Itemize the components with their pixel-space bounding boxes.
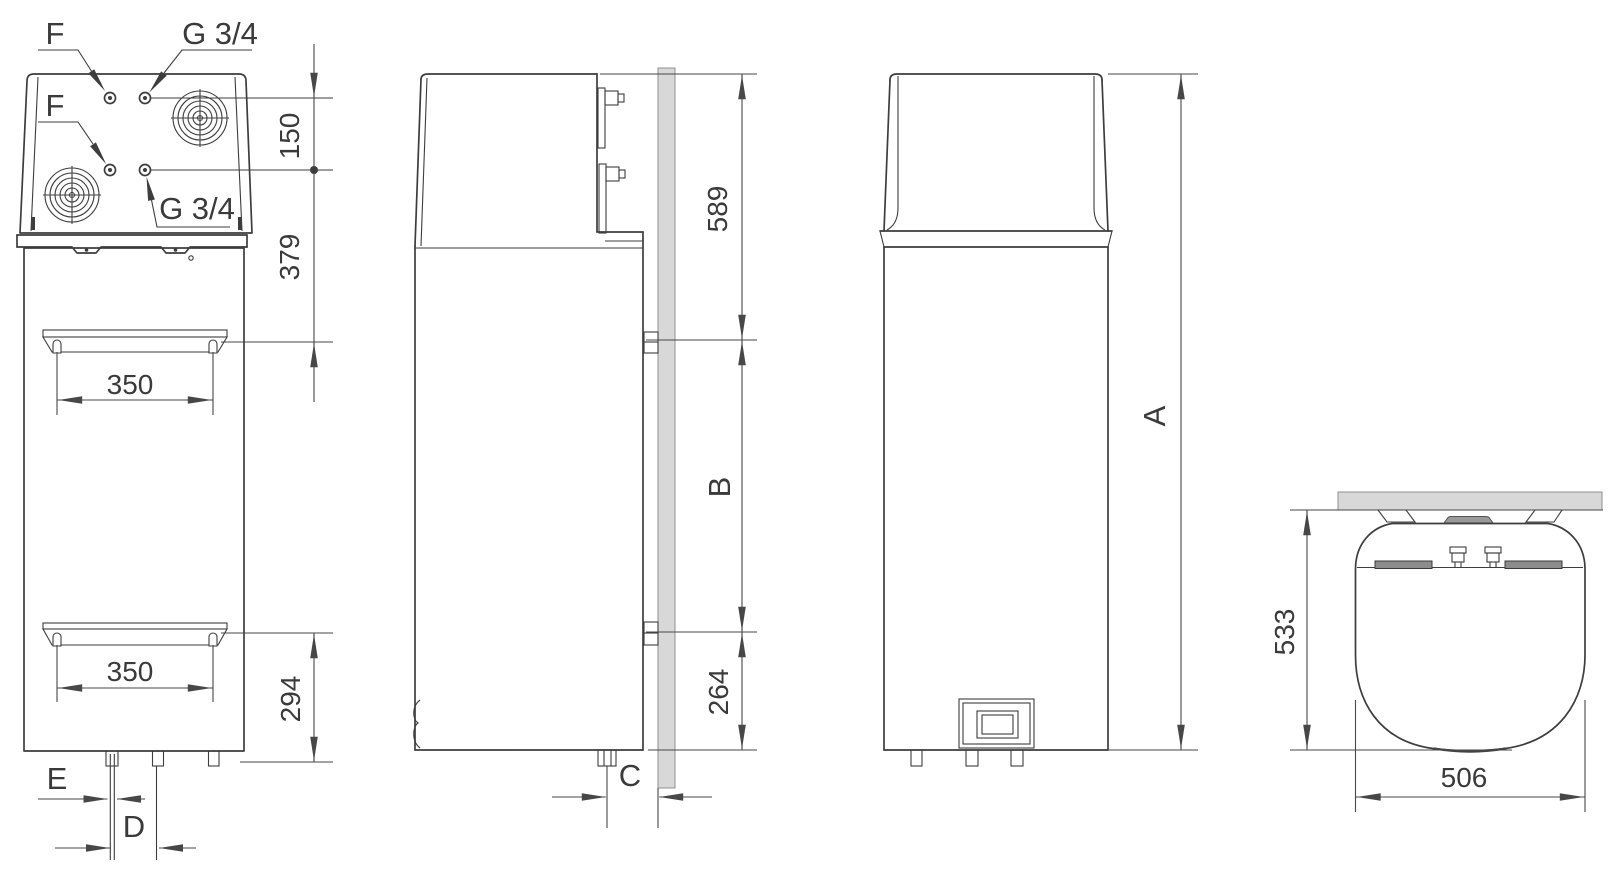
wall-section-top xyxy=(1338,492,1602,510)
leader-arrow-icon xyxy=(90,142,106,164)
dim-D-label: D xyxy=(123,809,145,844)
lower-mounting-bracket xyxy=(43,623,227,646)
pipe-stub xyxy=(153,751,164,766)
dim-chain-dot xyxy=(310,166,318,174)
fan-grille-icon-bottom-left xyxy=(43,166,101,224)
dim-E: E xyxy=(38,761,145,799)
port-label-g-mid: G 3/4 xyxy=(147,177,235,227)
drain-stub xyxy=(106,751,118,766)
dim-A-label: A xyxy=(1137,405,1172,426)
dim-350-lower: 350 xyxy=(57,645,213,702)
label-f-top: F xyxy=(46,16,65,51)
dim-264-label: 264 xyxy=(703,669,734,716)
dim-B-label: B xyxy=(702,477,737,498)
rear-outline xyxy=(880,74,1112,750)
bracket-bar-right xyxy=(1505,561,1562,569)
bracket-bar-left xyxy=(1375,561,1432,569)
label-g-mid: G 3/4 xyxy=(159,191,235,226)
pipe-stub xyxy=(209,751,220,766)
tank-body-top-outline xyxy=(1356,524,1586,751)
wall-bracket-lower xyxy=(644,622,658,645)
port-label-g-top: G 3/4 xyxy=(149,16,258,93)
dim-D: D xyxy=(55,809,196,848)
bracket-hook-left xyxy=(53,633,61,646)
rear-view: A xyxy=(880,74,1198,766)
bracket-hook-right xyxy=(209,340,217,353)
technical-drawing-page: F G 3/4 F G 3/4 xyxy=(0,0,1610,874)
dim-533-label: 533 xyxy=(1269,609,1300,656)
dim-chain-589-B-264: 589 B 264 xyxy=(600,74,757,750)
dim-E-label: E xyxy=(47,761,68,796)
leader-arrow-icon xyxy=(147,177,155,201)
dim-150-label: 150 xyxy=(274,113,305,160)
side-view: C 589 B 264 xyxy=(414,68,757,828)
top-cap xyxy=(1444,517,1493,524)
pipe-valve-left xyxy=(1450,547,1466,568)
dim-350-upper: 350 xyxy=(57,352,213,415)
panel-flange-tick-right xyxy=(238,217,242,230)
upper-mounting-bracket xyxy=(43,330,227,353)
top-view: 533 506 xyxy=(1269,492,1603,812)
port-label-f-top: F xyxy=(38,16,105,91)
dim-350-lower-label: 350 xyxy=(107,656,154,687)
dim-350-upper-label: 350 xyxy=(107,369,154,400)
port-label-f-mid: F xyxy=(38,88,106,164)
label-g-top: G 3/4 xyxy=(182,16,258,51)
dim-C-label: C xyxy=(619,758,641,793)
dim-294: 294 xyxy=(221,633,333,762)
dim-506: 506 xyxy=(1356,700,1586,812)
technical-drawing: F G 3/4 F G 3/4 xyxy=(0,0,1610,874)
pipe-valve-right xyxy=(1485,547,1501,568)
label-f-mid: F xyxy=(46,88,65,123)
dim-506-label: 506 xyxy=(1441,762,1488,793)
mount-tab-left xyxy=(1378,510,1415,522)
dim-294-label: 294 xyxy=(275,676,306,723)
panel-flange-tick-left xyxy=(31,217,35,230)
electrical-box xyxy=(959,699,1034,748)
leader-arrow-icon xyxy=(88,69,105,91)
front-view: F G 3/4 F G 3/4 xyxy=(17,16,333,860)
dim-589-label: 589 xyxy=(702,186,733,233)
mount-tab-right xyxy=(1526,510,1562,522)
side-bottom-stub xyxy=(598,750,616,766)
rear-bottom-stubs xyxy=(911,750,1023,766)
dim-A: A xyxy=(1108,74,1198,750)
dim-533: 533 xyxy=(1269,510,1512,750)
bracket-hook-right xyxy=(209,633,217,646)
side-outline xyxy=(414,74,643,750)
wall-section xyxy=(658,68,675,788)
bracket-hook-left xyxy=(53,340,61,353)
dim-379-label: 379 xyxy=(274,234,305,281)
dim-C: C xyxy=(552,758,712,828)
wall-bracket-upper xyxy=(644,332,658,353)
rear-pipe-connections xyxy=(598,88,625,233)
